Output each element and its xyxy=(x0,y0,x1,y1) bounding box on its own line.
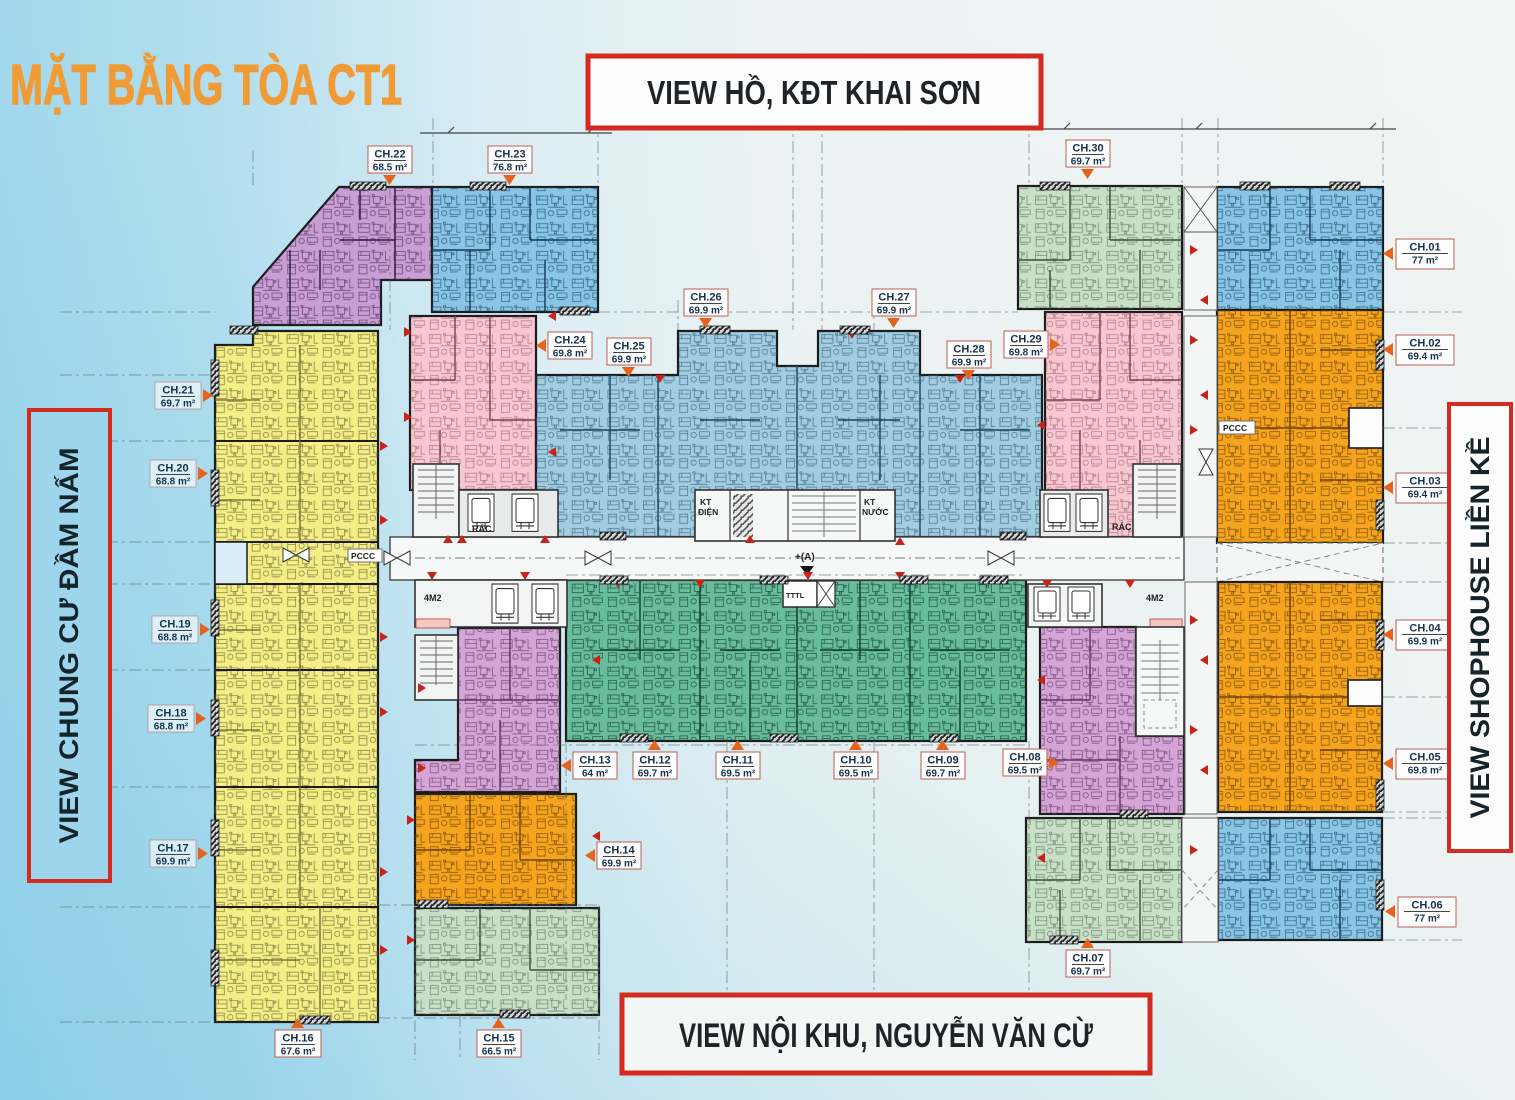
svg-text:CH.03: CH.03 xyxy=(1409,476,1440,488)
svg-text:69.4 m²: 69.4 m² xyxy=(1408,352,1443,363)
svg-text:VIEW SHOPHOUSE LIỀN KỀ: VIEW SHOPHOUSE LIỀN KỀ xyxy=(1464,437,1495,819)
svg-text:68.5 m²: 68.5 m² xyxy=(373,163,408,174)
svg-text:CH.09: CH.09 xyxy=(927,755,958,767)
svg-text:CH.10: CH.10 xyxy=(840,755,871,767)
svg-text:77 m²: 77 m² xyxy=(1414,914,1441,925)
svg-text:NƯỚC: NƯỚC xyxy=(862,506,889,517)
svg-text:CH.12: CH.12 xyxy=(639,755,670,767)
svg-text:+(A): +(A) xyxy=(795,552,815,563)
svg-text:CH.26: CH.26 xyxy=(690,292,721,304)
svg-text:CH.20: CH.20 xyxy=(157,463,188,475)
svg-text:69.4 m²: 69.4 m² xyxy=(1408,490,1443,501)
svg-text:68.8 m²: 68.8 m² xyxy=(158,633,193,644)
svg-text:69.9 m²: 69.9 m² xyxy=(612,355,647,366)
svg-text:69.9 m²: 69.9 m² xyxy=(877,306,912,317)
svg-text:69.7 m²: 69.7 m² xyxy=(161,399,196,410)
svg-text:CH.13: CH.13 xyxy=(579,755,610,767)
svg-text:TTTL: TTTL xyxy=(786,591,805,600)
svg-text:69.8 m²: 69.8 m² xyxy=(1009,348,1044,359)
svg-text:CH.19: CH.19 xyxy=(159,619,190,631)
svg-text:CH.21: CH.21 xyxy=(162,385,193,397)
svg-text:VIEW NỘI KHU, NGUYỄN VĂN CỪ: VIEW NỘI KHU, NGUYỄN VĂN CỪ xyxy=(679,1016,1094,1055)
svg-text:CH.27: CH.27 xyxy=(878,292,909,304)
svg-text:67.6 m²: 67.6 m² xyxy=(281,1047,316,1058)
svg-text:69.9 m²: 69.9 m² xyxy=(1408,637,1443,648)
svg-text:CH.15: CH.15 xyxy=(483,1033,514,1045)
svg-text:69.7 m²: 69.7 m² xyxy=(638,769,673,780)
svg-text:68.8 m²: 68.8 m² xyxy=(154,722,189,733)
svg-text:69.9 m²: 69.9 m² xyxy=(602,859,637,870)
svg-text:68.8 m²: 68.8 m² xyxy=(156,477,191,488)
svg-text:CH.02: CH.02 xyxy=(1409,338,1440,350)
svg-text:CH.25: CH.25 xyxy=(613,341,644,353)
svg-text:CH.30: CH.30 xyxy=(1072,143,1103,155)
svg-text:69.9 m²: 69.9 m² xyxy=(156,857,191,868)
svg-text:69.8 m²: 69.8 m² xyxy=(1408,766,1443,777)
svg-text:RÁC: RÁC xyxy=(472,524,492,534)
svg-text:VIEW HỒ, KĐT KHAI SƠN: VIEW HỒ, KĐT KHAI SƠN xyxy=(647,74,981,111)
svg-text:69.5 m²: 69.5 m² xyxy=(1008,766,1043,777)
svg-text:4M2: 4M2 xyxy=(1146,593,1164,603)
svg-text:69.9 m²: 69.9 m² xyxy=(952,358,987,369)
svg-text:CH.29: CH.29 xyxy=(1010,334,1041,346)
svg-text:64 m²: 64 m² xyxy=(582,769,609,780)
svg-text:PCCC: PCCC xyxy=(1223,423,1247,433)
svg-text:KT: KT xyxy=(700,497,712,507)
svg-text:69.5 m²: 69.5 m² xyxy=(839,769,874,780)
svg-text:CH.28: CH.28 xyxy=(953,344,984,356)
svg-text:CH.23: CH.23 xyxy=(494,149,525,161)
svg-text:RÁC: RÁC xyxy=(1112,522,1132,532)
svg-text:CH.08: CH.08 xyxy=(1009,752,1040,764)
svg-text:CH.06: CH.06 xyxy=(1411,900,1442,912)
svg-text:69.9 m²: 69.9 m² xyxy=(689,306,724,317)
svg-text:69.7 m²: 69.7 m² xyxy=(1071,157,1106,168)
svg-text:VIEW CHUNG CƯ ĐẦM NẤM: VIEW CHUNG CƯ ĐẦM NẤM xyxy=(53,448,84,844)
svg-text:CH.11: CH.11 xyxy=(723,755,754,767)
svg-text:69.8 m²: 69.8 m² xyxy=(553,349,588,360)
svg-text:CH.14: CH.14 xyxy=(603,845,635,857)
svg-text:KT: KT xyxy=(864,497,876,507)
svg-text:CH.17: CH.17 xyxy=(157,843,188,855)
svg-text:4M2: 4M2 xyxy=(424,593,442,603)
svg-text:69.7 m²: 69.7 m² xyxy=(926,769,961,780)
svg-text:CH.18: CH.18 xyxy=(155,708,186,720)
svg-text:PCCC: PCCC xyxy=(351,551,375,561)
svg-text:CH.16: CH.16 xyxy=(282,1033,313,1045)
svg-text:CH.24: CH.24 xyxy=(554,335,586,347)
svg-text:69.5 m²: 69.5 m² xyxy=(721,769,756,780)
svg-text:ĐIỆN: ĐIỆN xyxy=(698,506,718,517)
svg-text:CH.05: CH.05 xyxy=(1409,752,1440,764)
svg-text:CH.01: CH.01 xyxy=(1409,242,1440,254)
svg-text:MẶT BẰNG TÒA CT1: MẶT BẰNG TÒA CT1 xyxy=(10,52,402,117)
svg-text:77 m²: 77 m² xyxy=(1412,256,1439,267)
svg-text:66.5 m²: 66.5 m² xyxy=(482,1047,517,1058)
svg-text:76.8 m²: 76.8 m² xyxy=(493,163,528,174)
svg-text:CH.04: CH.04 xyxy=(1409,623,1441,635)
svg-text:CH.22: CH.22 xyxy=(374,149,405,161)
svg-text:69.7 m²: 69.7 m² xyxy=(1071,967,1106,978)
svg-text:CH.07: CH.07 xyxy=(1072,953,1103,965)
